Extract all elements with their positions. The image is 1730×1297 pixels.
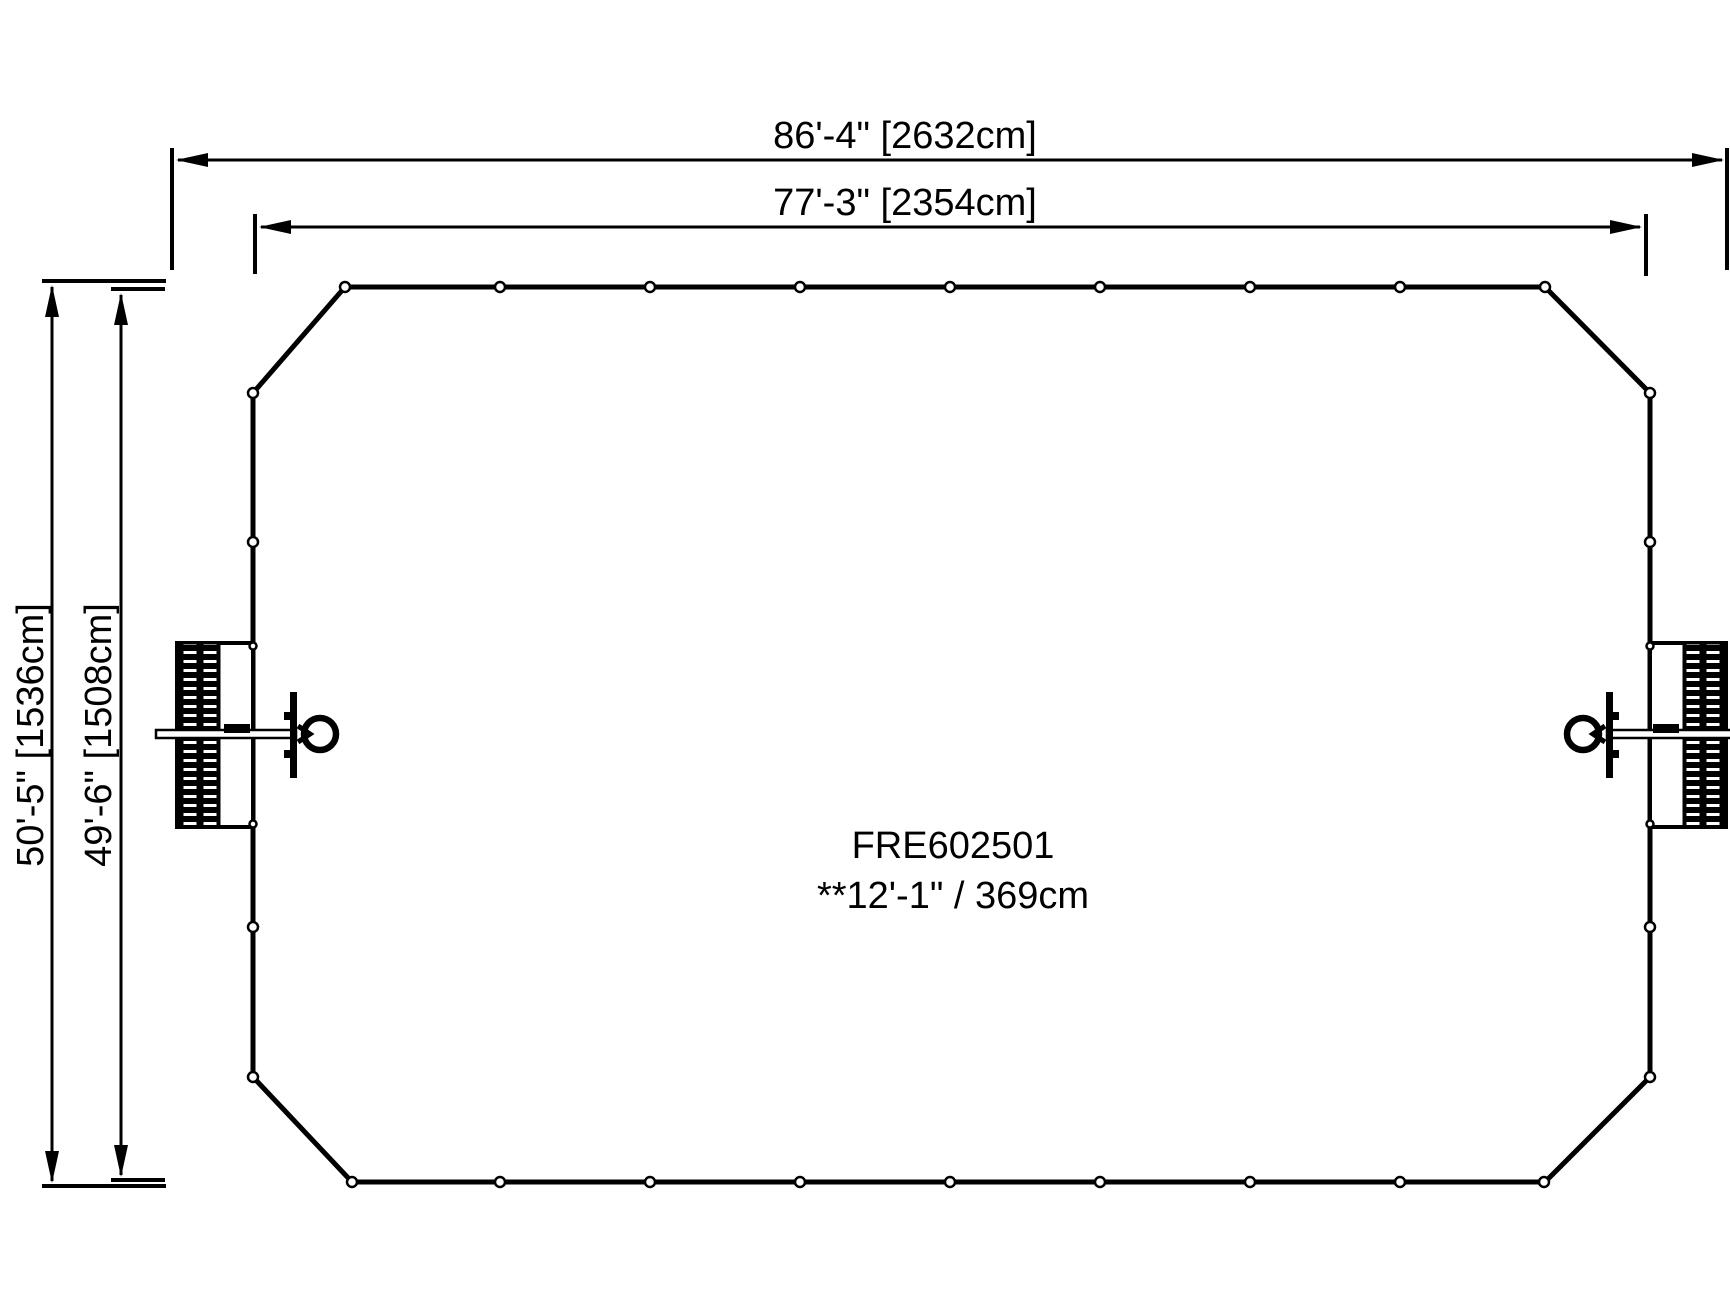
frame-joint <box>1245 282 1255 292</box>
frame-joint <box>795 282 805 292</box>
frame-joint <box>1647 643 1654 650</box>
frame-joint <box>347 1177 357 1187</box>
frame-joint <box>945 1177 955 1187</box>
arrowhead-down-icon <box>45 1151 59 1183</box>
arrowhead-up-icon <box>114 293 128 325</box>
frame-joint <box>1647 821 1654 828</box>
frame-joint <box>1645 388 1655 398</box>
frame-joint <box>250 643 257 650</box>
dimension-label-outer-width: 86'-4" [2632cm] <box>773 115 1037 157</box>
frame-joint <box>340 282 350 292</box>
frame-joint <box>1095 282 1105 292</box>
frame-joint <box>248 537 258 547</box>
frame-joint <box>1245 1177 1255 1187</box>
frame-joint <box>1539 1177 1549 1187</box>
dimension-label-outer-height: 50'-5" [1536cm] <box>10 603 52 867</box>
frame-joint <box>945 282 955 292</box>
frame-joint <box>1395 282 1405 292</box>
frame-joint <box>645 1177 655 1187</box>
frame-joint <box>1540 282 1550 292</box>
frame-joint <box>250 821 257 828</box>
frame-joint <box>1395 1177 1405 1187</box>
dimension-label-inner-height: 49'-6" [1508cm] <box>78 603 120 867</box>
arrowhead-right-icon <box>1692 153 1724 167</box>
frame-joint <box>795 1177 805 1187</box>
dimension-label-inner-width: 77'-3" [2354cm] <box>773 182 1037 224</box>
frame-plan-drawing: 86'-4" [2632cm] 77'-3" [2354cm] 50'-5" [… <box>0 0 1730 1297</box>
frame-joint <box>645 282 655 292</box>
part-model-label: FRE602501 <box>852 825 1055 867</box>
frame-joint <box>248 922 258 932</box>
technical-drawing-page: 86'-4" [2632cm] 77'-3" [2354cm] 50'-5" [… <box>0 0 1730 1297</box>
dimension-inner-width: 77'-3" [2354cm] <box>255 182 1646 276</box>
arrowhead-left-icon <box>259 220 291 234</box>
frame-joint <box>248 1072 258 1082</box>
arrowhead-up-icon <box>45 285 59 317</box>
frame-joint <box>495 1177 505 1187</box>
frame-joint <box>1095 1177 1105 1187</box>
frame-joint <box>1645 1072 1655 1082</box>
part-height-note-label: **12'-1" / 369cm <box>817 875 1089 917</box>
arrowhead-right-icon <box>1610 220 1642 234</box>
dimension-inner-height: 49'-6" [1508cm] <box>78 289 165 1180</box>
frame-joint <box>1645 922 1655 932</box>
arrowhead-left-icon <box>176 153 208 167</box>
frame-joint <box>495 282 505 292</box>
arrowhead-down-icon <box>114 1145 128 1177</box>
frame-joint <box>248 388 258 398</box>
frame-joint <box>1645 537 1655 547</box>
frame-outline <box>253 287 1650 1182</box>
